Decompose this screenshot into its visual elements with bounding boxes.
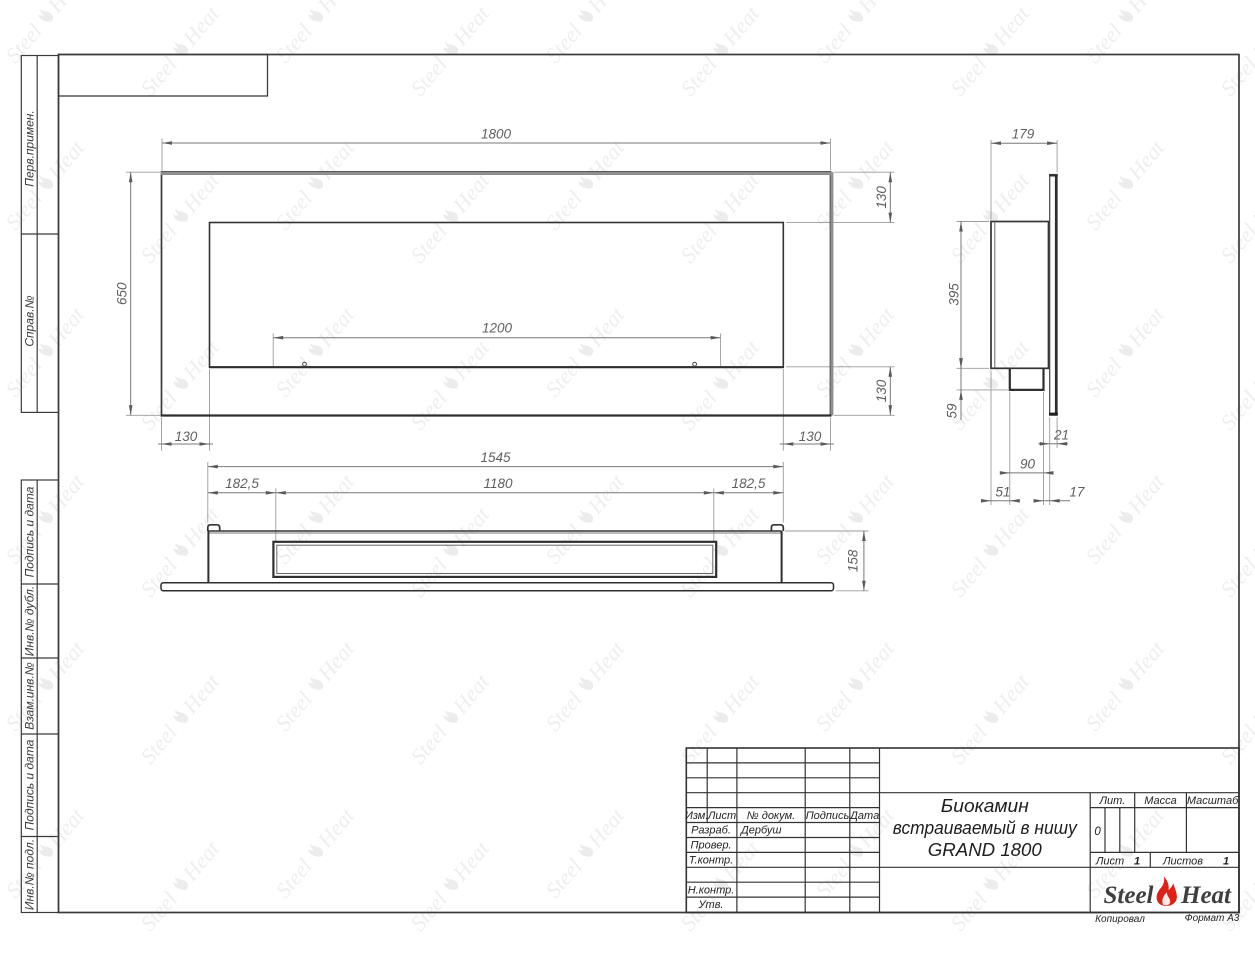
svg-text:650: 650 — [115, 282, 130, 305]
svg-text:Масштаб: Масштаб — [1187, 795, 1239, 807]
svg-text:179: 179 — [1012, 127, 1035, 142]
svg-text:Утв.: Утв. — [698, 899, 724, 911]
svg-text:1200: 1200 — [482, 320, 513, 335]
svg-text:Steel: Steel — [1104, 882, 1154, 909]
svg-text:Дербуш: Дербуш — [739, 825, 782, 837]
svg-text:Разраб.: Разраб. — [691, 825, 731, 837]
svg-text:1: 1 — [1223, 855, 1229, 867]
svg-text:51: 51 — [995, 484, 1010, 499]
svg-text:Дата: Дата — [848, 810, 879, 822]
svg-text:Инв.№ дубл.: Инв.№ дубл. — [23, 586, 37, 656]
svg-text:130: 130 — [175, 429, 198, 444]
svg-text:130: 130 — [874, 186, 889, 209]
svg-text:Перв.примен.: Перв.примен. — [23, 110, 37, 186]
svg-text:Справ.№: Справ.№ — [23, 295, 37, 346]
svg-text:90: 90 — [1020, 456, 1036, 471]
svg-text:Лит.: Лит. — [1099, 795, 1126, 807]
svg-text:182,5: 182,5 — [225, 476, 259, 491]
svg-text:17: 17 — [1069, 484, 1085, 499]
svg-text:130: 130 — [799, 429, 822, 444]
svg-text:1800: 1800 — [481, 127, 512, 142]
svg-text:158: 158 — [846, 549, 861, 572]
svg-text:Подпись и дата: Подпись и дата — [23, 739, 37, 830]
svg-text:Копировал: Копировал — [1095, 914, 1145, 925]
svg-text:Масса: Масса — [1144, 795, 1177, 807]
svg-text:Н.контр.: Н.контр. — [688, 884, 735, 896]
svg-text:1545: 1545 — [480, 450, 511, 465]
svg-text:Подпись: Подпись — [806, 810, 850, 822]
svg-text:395: 395 — [947, 283, 962, 306]
svg-text:Лист: Лист — [1095, 855, 1124, 867]
svg-text:№ докум.: № докум. — [747, 810, 795, 822]
svg-text:встраиваемый в нишу: встраиваемый в нишу — [893, 817, 1079, 838]
svg-text:1180: 1180 — [483, 476, 513, 491]
svg-text:Провер.: Провер. — [691, 840, 732, 852]
svg-text:Биокамин: Биокамин — [941, 795, 1029, 816]
svg-text:1: 1 — [1134, 855, 1140, 867]
svg-text:182,5: 182,5 — [732, 476, 766, 491]
svg-text:Т.контр.: Т.контр. — [689, 855, 733, 867]
svg-text:Инв.№ подл.: Инв.№ подл. — [23, 839, 37, 910]
svg-text:Взам.инв.№: Взам.инв.№ — [23, 662, 37, 730]
svg-text:59: 59 — [945, 403, 960, 419]
svg-text:130: 130 — [874, 379, 889, 402]
svg-text:0: 0 — [1094, 826, 1101, 838]
svg-text:GRAND 1800: GRAND 1800 — [928, 839, 1043, 860]
svg-text:Лист: Лист — [707, 810, 736, 822]
svg-text:Формат A3: Формат A3 — [1185, 913, 1240, 924]
svg-text:Подпись и дата: Подпись и дата — [23, 486, 37, 577]
svg-text:Изм.: Изм. — [685, 810, 708, 822]
svg-text:Листов: Листов — [1162, 855, 1203, 867]
svg-text:21: 21 — [1053, 427, 1069, 442]
svg-text:Heat: Heat — [1180, 882, 1232, 909]
